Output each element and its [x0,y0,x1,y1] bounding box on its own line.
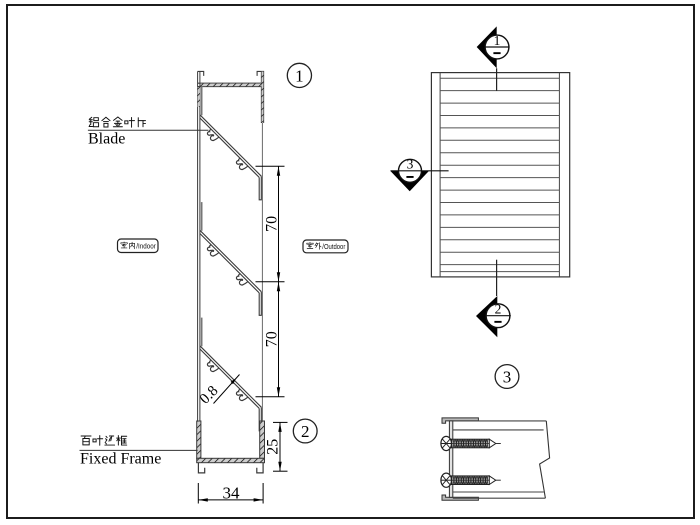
svg-text:70: 70 [263,216,280,232]
svg-text:2: 2 [495,302,502,317]
svg-text:25: 25 [264,439,281,455]
svg-text:3: 3 [503,367,512,386]
svg-text:1: 1 [295,66,304,85]
svg-text:/Outdoor: /Outdoor [322,242,345,251]
svg-text:Fixed Frame: Fixed Frame [80,450,161,467]
svg-text:2: 2 [301,422,310,441]
svg-text:70: 70 [263,331,280,347]
svg-text:3: 3 [407,157,414,172]
svg-text:34: 34 [223,483,241,502]
svg-text:Blade: Blade [88,130,125,147]
svg-text:1: 1 [494,33,501,48]
svg-text:/Indoor: /Indoor [136,242,156,251]
